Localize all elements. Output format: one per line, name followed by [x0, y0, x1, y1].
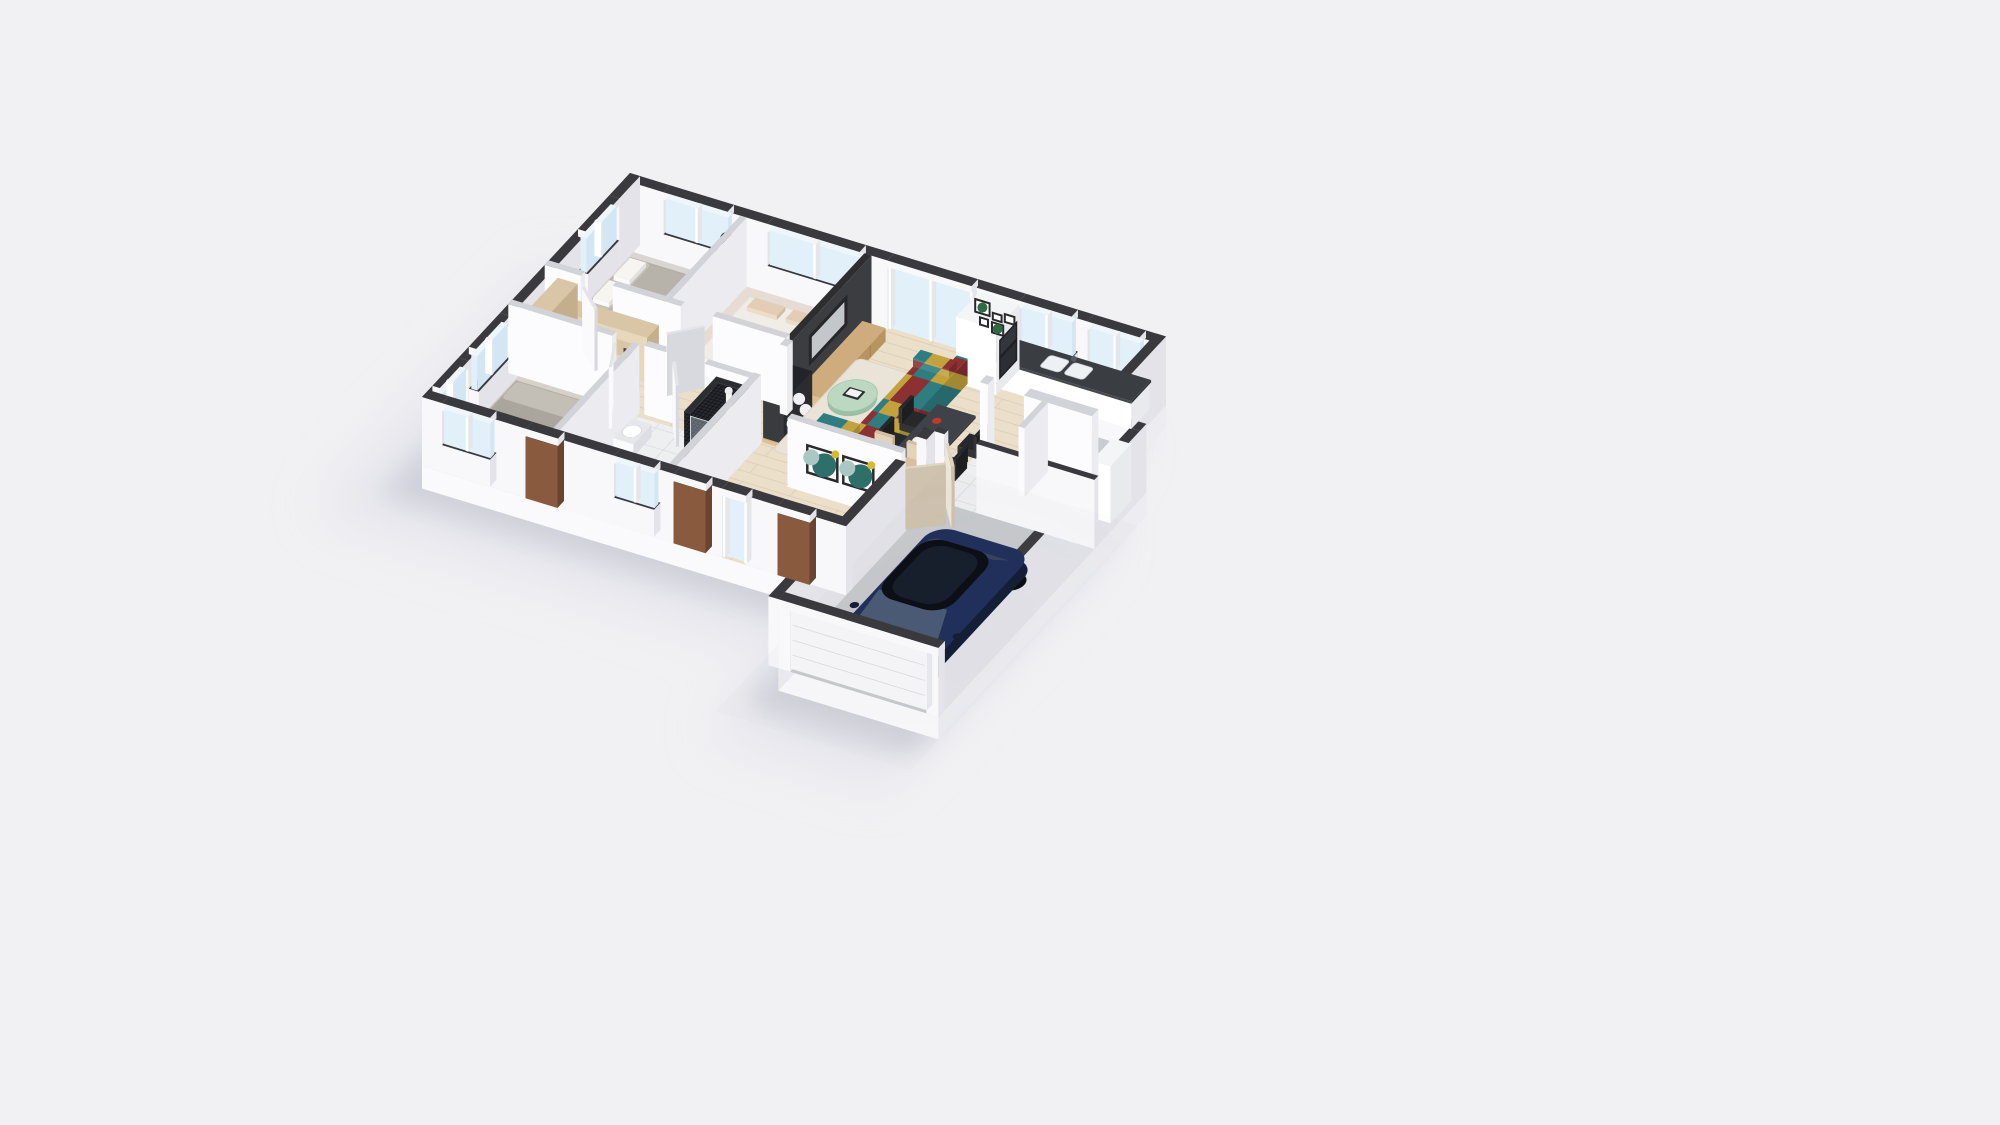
front-door-brown	[526, 422, 565, 508]
front-door-glass	[722, 482, 753, 565]
window	[614, 449, 661, 537]
floorplan-3d-render	[0, 0, 2000, 1125]
front-door-brown	[674, 467, 713, 553]
floorplan-viewport	[0, 0, 2000, 1125]
front-door-brown	[778, 499, 817, 585]
window	[442, 396, 497, 487]
